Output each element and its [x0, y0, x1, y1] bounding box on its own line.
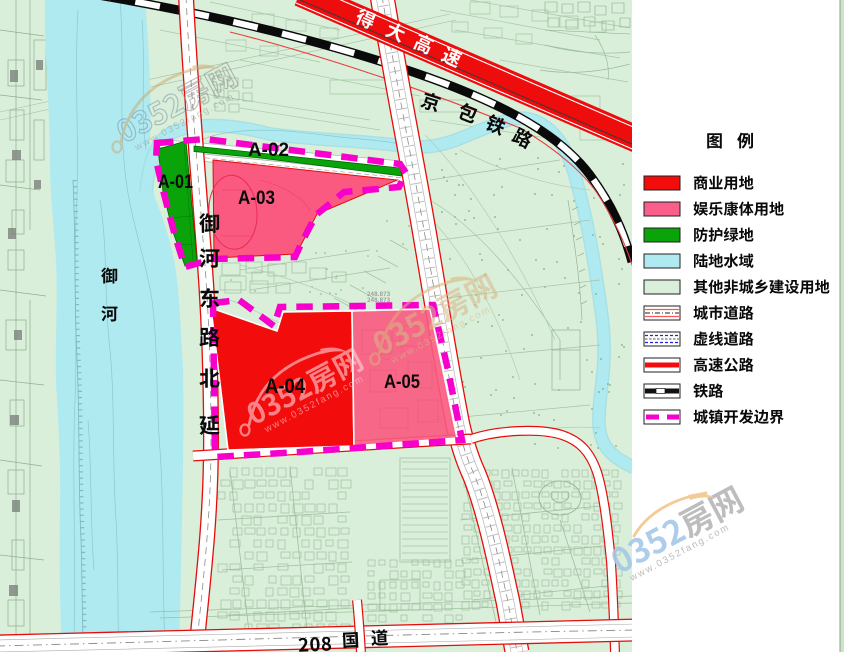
svg-text:A-01: A-01 [158, 171, 193, 193]
svg-text:A-05: A-05 [384, 371, 420, 393]
svg-text:A-03: A-03 [238, 187, 275, 209]
svg-text:A-02: A-02 [248, 139, 289, 161]
svg-text:A-04: A-04 [265, 375, 305, 398]
